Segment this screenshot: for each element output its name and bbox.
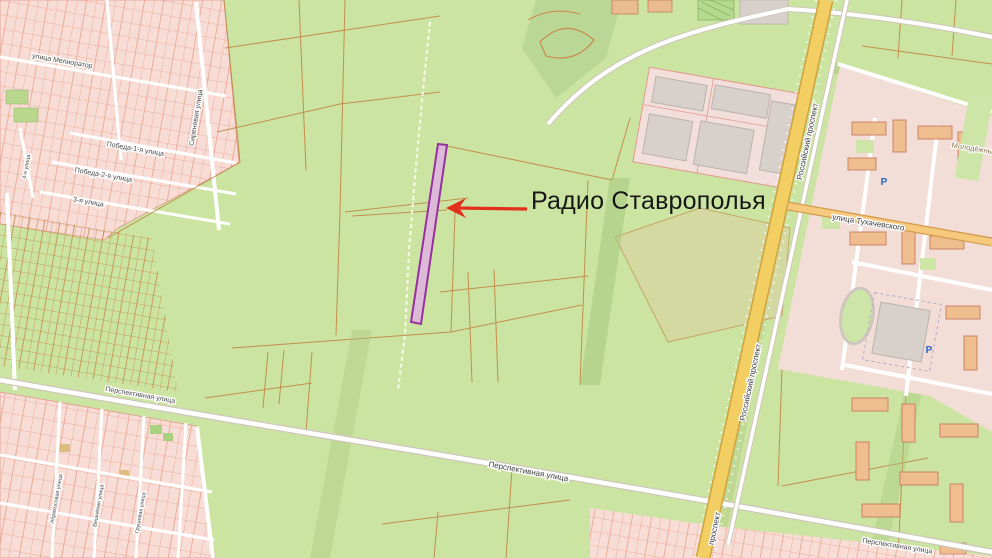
map-screenshot: улица Мелиоратор Сиреневая улица Победа-… — [0, 0, 992, 558]
annotation-label: Радио Ставрополья — [531, 187, 766, 216]
parking-icon: P — [926, 345, 933, 356]
map-canvas[interactable]: улица Мелиоратор Сиреневая улица Победа-… — [0, 0, 992, 558]
parking-icon: P — [881, 177, 888, 188]
